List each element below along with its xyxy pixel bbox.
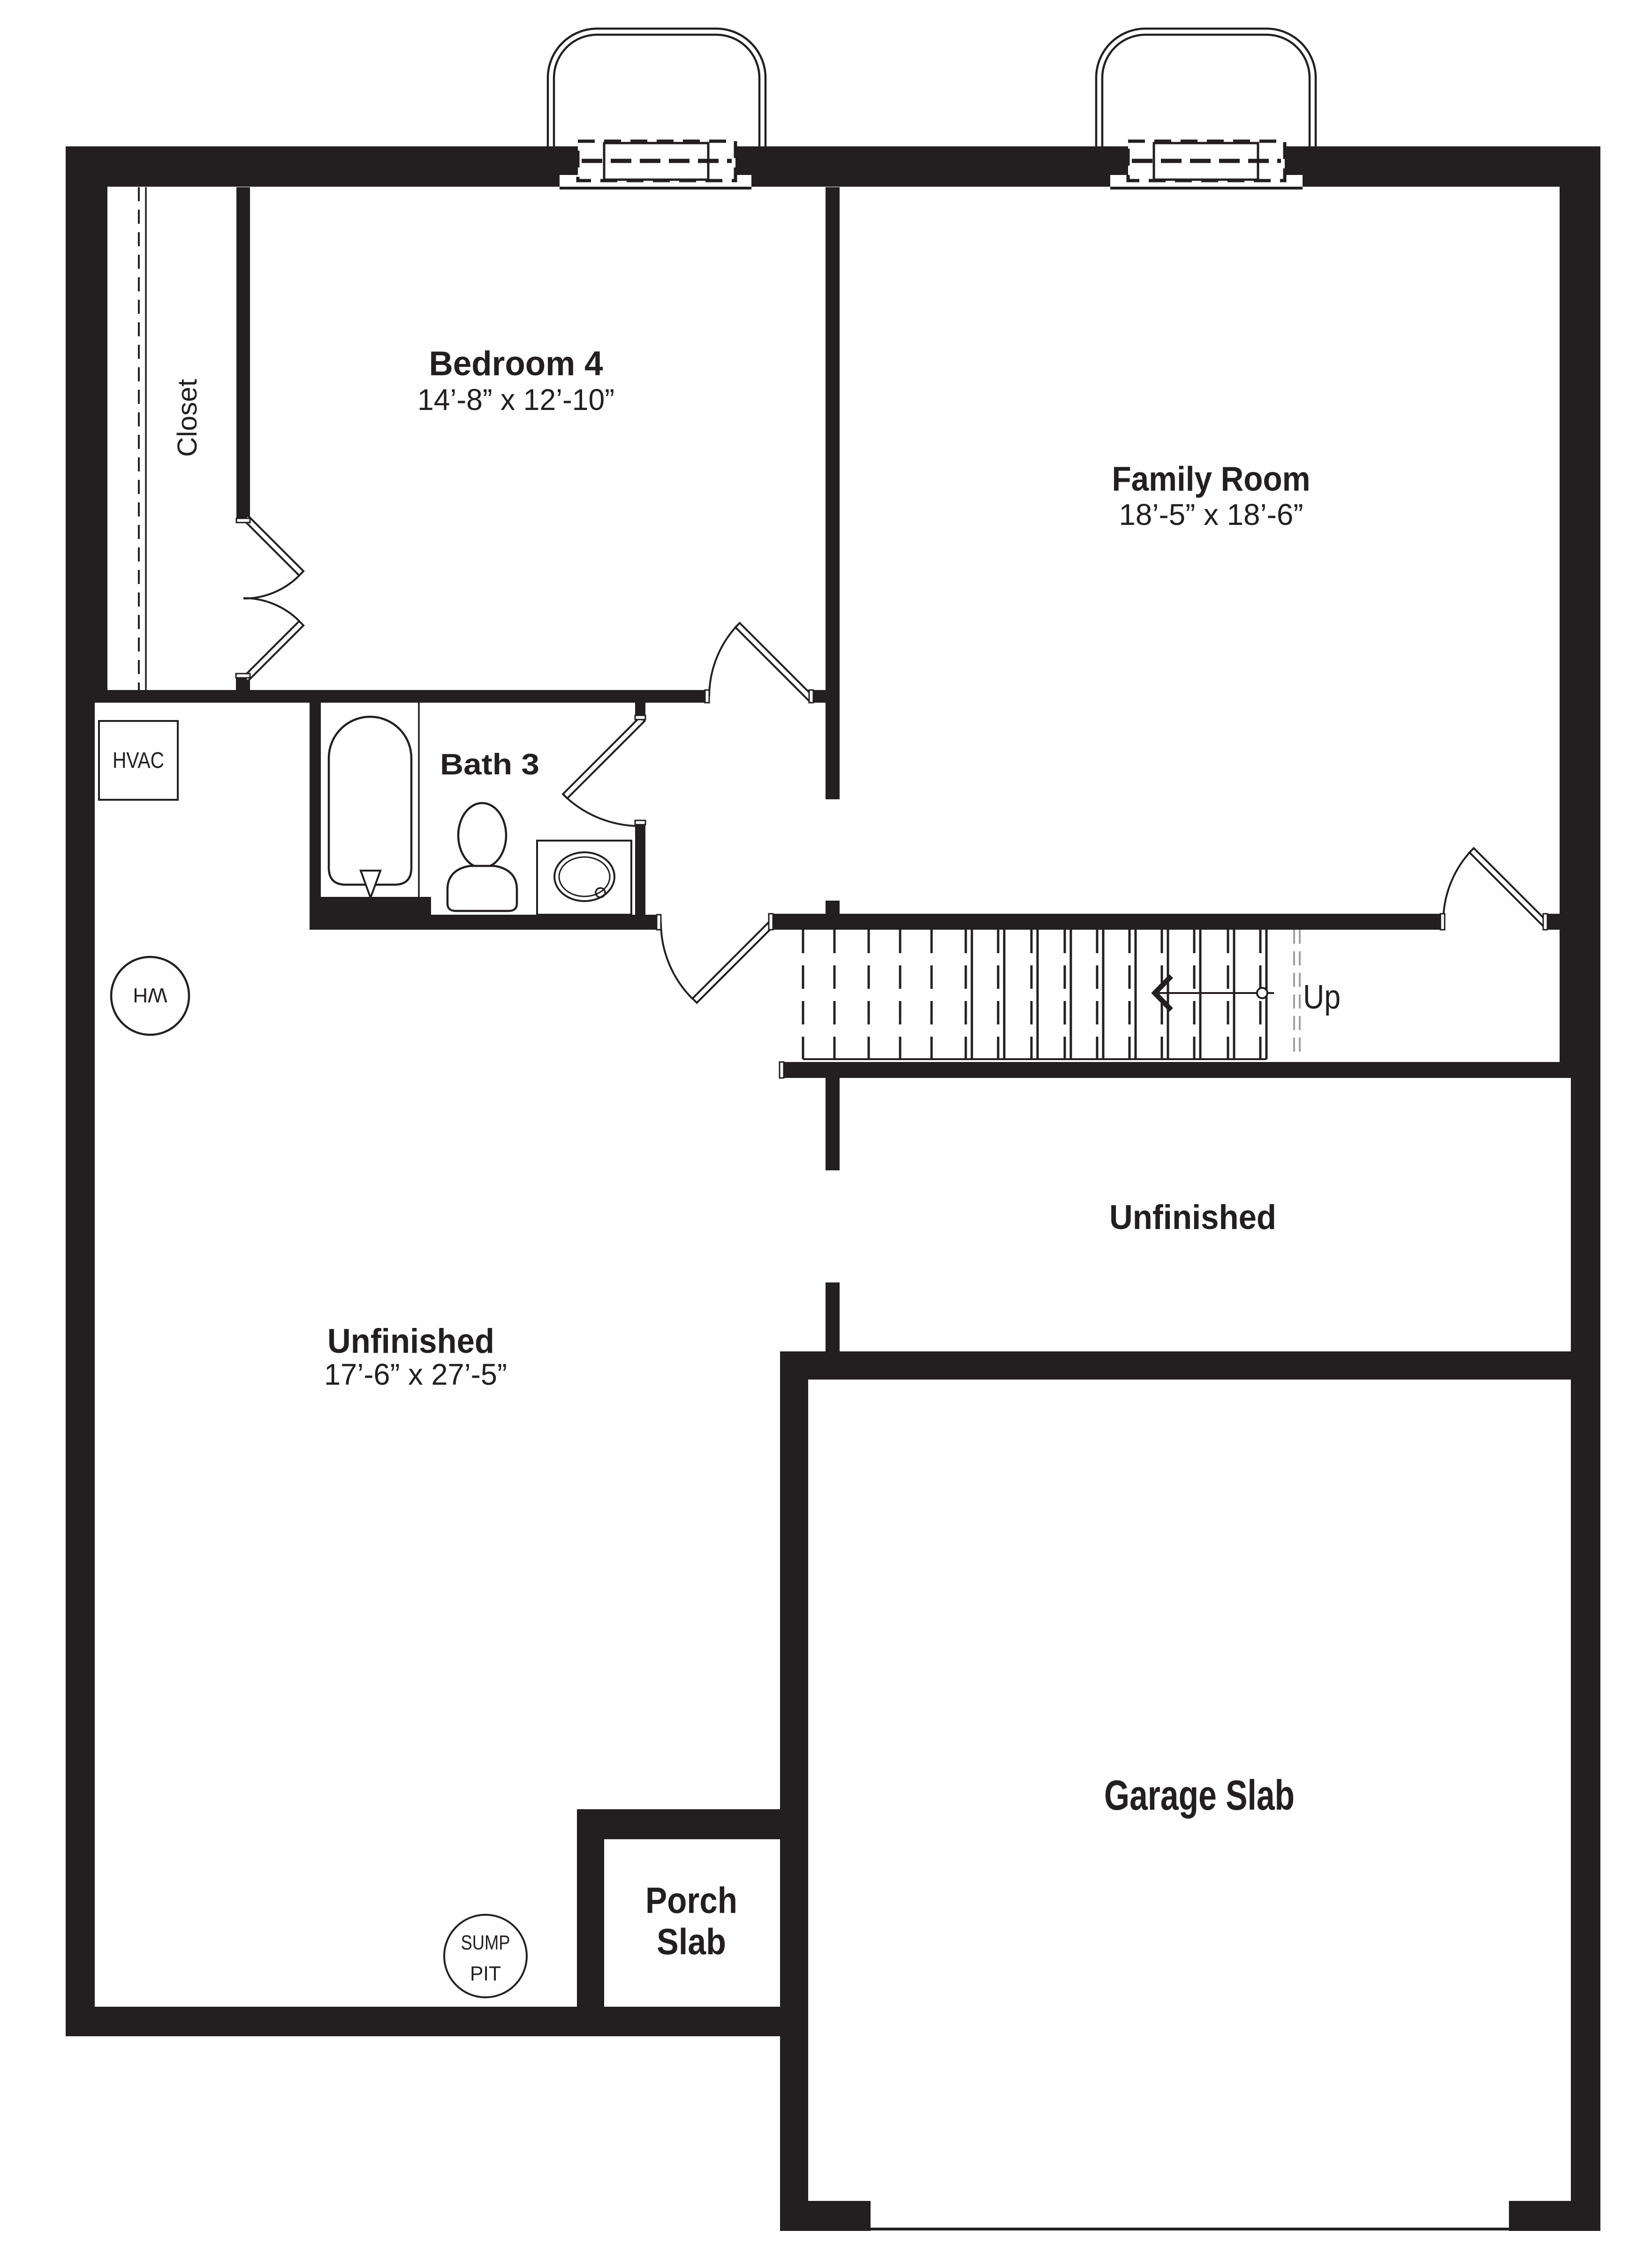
svg-text:17’-6” x 27’-5”: 17’-6” x 27’-5” [324,1358,507,1391]
svg-text:Closet: Closet [172,379,203,457]
svg-text:SUMP: SUMP [461,1931,510,1954]
svg-text:18’-5” x 18’-6”: 18’-5” x 18’-6” [1119,498,1303,531]
svg-text:Unfinished: Unfinished [1109,1198,1276,1236]
svg-text:Slab: Slab [657,1921,726,1962]
svg-text:HVAC: HVAC [113,748,164,773]
svg-text:Porch: Porch [645,1880,737,1921]
svg-text:Garage Slab: Garage Slab [1104,1772,1295,1819]
svg-text:WH: WH [133,984,167,1007]
svg-text:Bath 3: Bath 3 [440,748,539,781]
svg-text:14’-8” x 12’-10”: 14’-8” x 12’-10” [417,383,614,417]
svg-text:Family Room: Family Room [1112,460,1311,498]
svg-text:Unfinished: Unfinished [327,1322,494,1360]
svg-text:Up: Up [1303,978,1341,1016]
svg-text:Bedroom 4: Bedroom 4 [429,345,603,383]
svg-text:PIT: PIT [470,1962,501,1985]
